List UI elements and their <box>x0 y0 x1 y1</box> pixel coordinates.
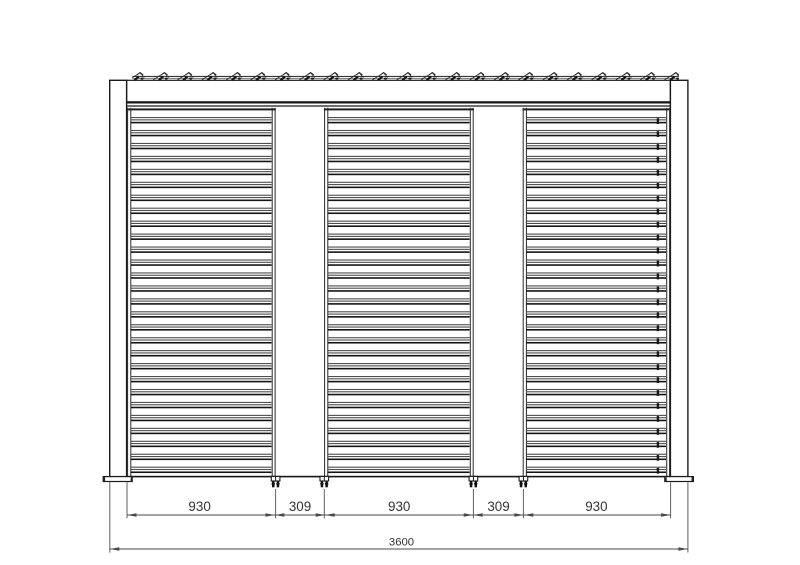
svg-text:930: 930 <box>585 499 607 514</box>
svg-text:309: 309 <box>487 499 509 514</box>
svg-text:930: 930 <box>188 499 210 514</box>
svg-text:309: 309 <box>289 499 311 514</box>
svg-text:930: 930 <box>388 499 410 514</box>
svg-text:3600: 3600 <box>389 537 414 549</box>
